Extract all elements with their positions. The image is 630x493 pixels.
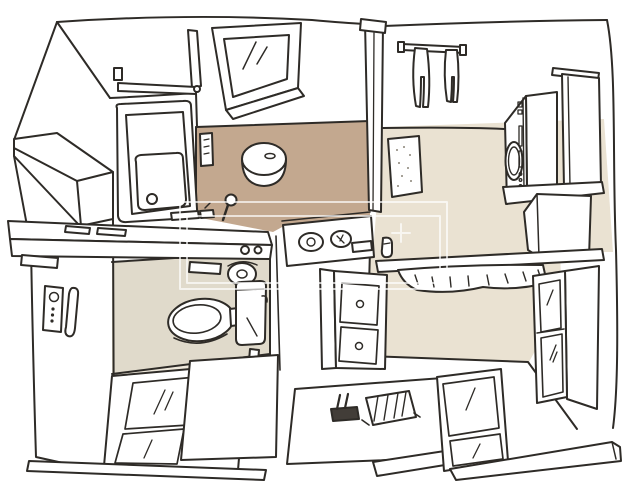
toilet-tank: [236, 281, 266, 345]
towel: [445, 50, 459, 102]
towel: [413, 48, 429, 107]
shower-stool: [242, 143, 286, 186]
glass-door-cabinet: [533, 266, 599, 409]
open-door-panel: [181, 355, 278, 460]
floorplan-sketch: Hand-drawn perspective sketch of a compa…: [0, 0, 630, 493]
soap-tray: [352, 241, 372, 252]
toilet-remote: [43, 286, 63, 332]
door-latch: [382, 238, 392, 258]
speckled-wall-mat: [388, 136, 422, 197]
shelf-strip: [200, 133, 213, 166]
sliding-glass-door-right: [437, 369, 508, 471]
tub-drain: [147, 194, 157, 204]
